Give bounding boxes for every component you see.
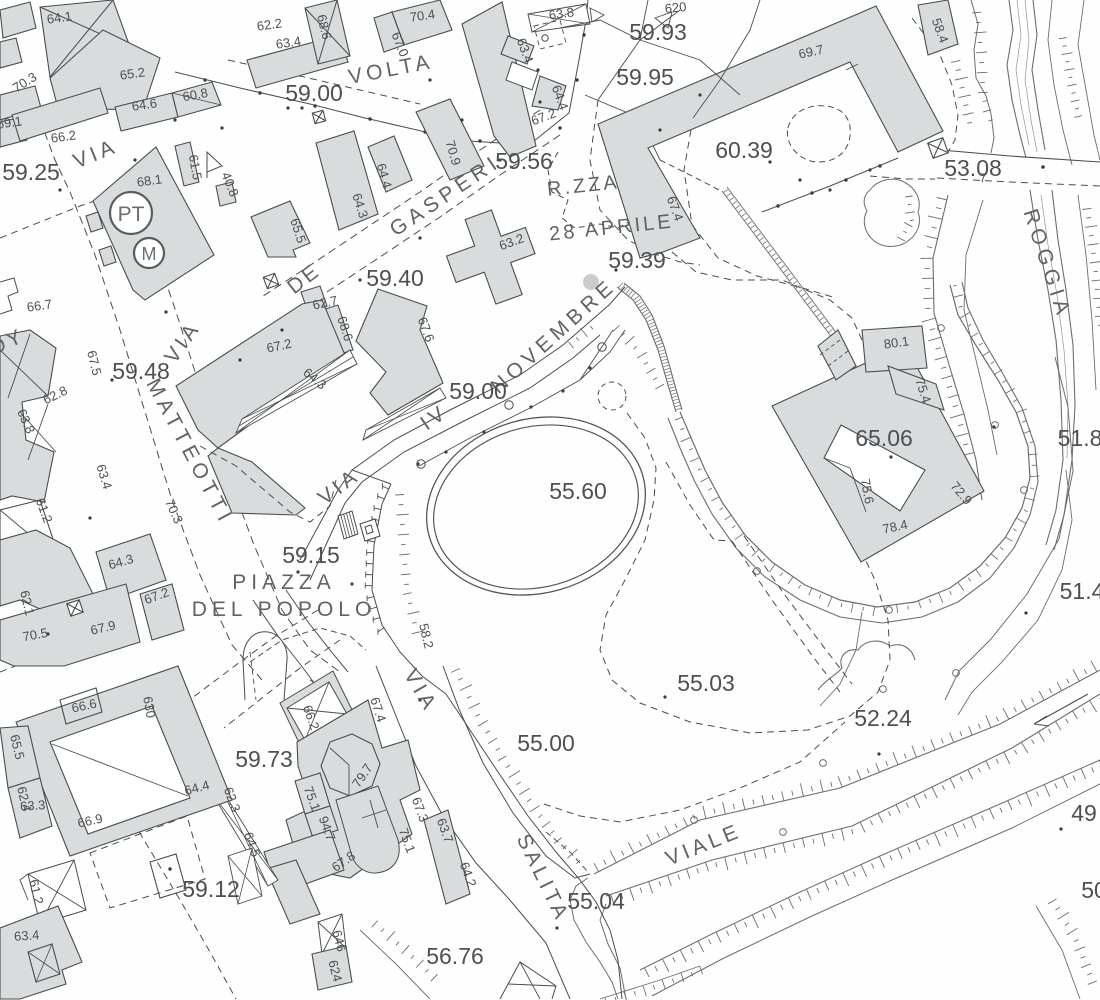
svg-text:M: M (142, 244, 157, 264)
svg-text:53.08: 53.08 (944, 155, 1002, 181)
svg-text:52.24: 52.24 (854, 705, 912, 731)
svg-text:DEL POPOLO: DEL POPOLO (192, 598, 377, 621)
svg-text:7: 7 (980, 171, 987, 185)
svg-text:59.00: 59.00 (449, 378, 507, 404)
svg-text:59.73: 59.73 (235, 746, 293, 772)
svg-text:65.06: 65.06 (855, 425, 913, 451)
svg-text:620: 620 (664, 0, 687, 16)
svg-text:49: 49 (1071, 800, 1097, 826)
svg-text:59.93: 59.93 (629, 19, 687, 45)
svg-text:59.40: 59.40 (366, 265, 424, 291)
svg-text:59.00: 59.00 (285, 80, 343, 106)
svg-text:63.4: 63.4 (14, 927, 40, 944)
svg-text:55.04: 55.04 (567, 888, 625, 914)
svg-text:50: 50 (1081, 877, 1100, 903)
svg-text:59.25: 59.25 (2, 159, 60, 185)
svg-text:59.39: 59.39 (608, 247, 666, 273)
svg-text:PIAZZA: PIAZZA (232, 571, 336, 594)
svg-text:59.48: 59.48 (112, 358, 170, 384)
svg-text:PT: PT (118, 203, 145, 226)
svg-text:59.95: 59.95 (616, 64, 674, 90)
svg-text:60.39: 60.39 (715, 137, 773, 163)
svg-text:59.15: 59.15 (282, 542, 340, 568)
svg-text:55.03: 55.03 (677, 670, 735, 696)
svg-text:59.12: 59.12 (182, 876, 240, 902)
svg-text:56.76: 56.76 (426, 943, 484, 969)
svg-text:55.60: 55.60 (549, 478, 607, 504)
svg-text:55.00: 55.00 (517, 730, 575, 756)
svg-text:63.3: 63.3 (20, 797, 46, 814)
svg-text:51.4: 51.4 (1060, 578, 1100, 604)
svg-text:59.56: 59.56 (495, 148, 553, 174)
svg-text:51.8: 51.8 (1058, 425, 1100, 451)
